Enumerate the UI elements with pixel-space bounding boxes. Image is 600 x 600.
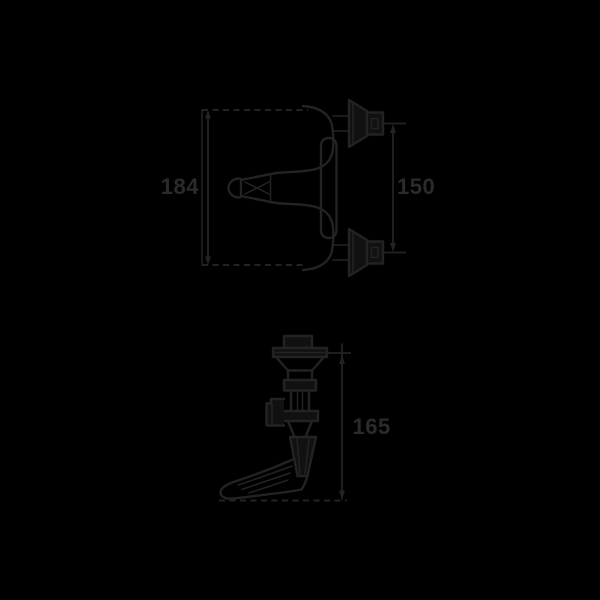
dimension-165: 165 bbox=[327, 344, 391, 500]
lower-cone bbox=[290, 437, 316, 476]
dimension-184-label: 184 bbox=[161, 174, 199, 199]
drawing-canvas: 184 bbox=[0, 0, 600, 600]
dimension-150: 150 bbox=[383, 124, 435, 253]
arrow-up-icon bbox=[390, 125, 396, 134]
body-band-lower bbox=[282, 411, 318, 421]
arrow-up-icon bbox=[339, 356, 345, 365]
body-cylinder bbox=[291, 391, 309, 412]
technical-drawing: 184 bbox=[0, 0, 600, 600]
handle-taper bbox=[276, 357, 324, 371]
bottom-union-body bbox=[367, 242, 383, 264]
arrow-down-icon bbox=[390, 243, 396, 252]
body-bridge bbox=[321, 138, 337, 238]
handle-cap bbox=[284, 336, 312, 348]
side-view: 165 bbox=[219, 336, 391, 501]
body-outline-bottom bbox=[241, 196, 333, 270]
bottom-flange-cone bbox=[349, 229, 367, 276]
spout-aerator-ring bbox=[229, 179, 239, 198]
body-band-upper bbox=[284, 380, 316, 391]
lower-taper bbox=[288, 421, 312, 437]
dimension-165-label: 165 bbox=[353, 414, 391, 439]
top-flange-cone bbox=[349, 100, 367, 147]
body-cylinder-lines bbox=[298, 391, 303, 412]
body-neck bbox=[288, 371, 312, 381]
dimension-150-label: 150 bbox=[397, 174, 435, 199]
dimension-184: 184 bbox=[161, 110, 211, 265]
arrow-down-icon bbox=[205, 257, 211, 266]
top-view: 184 bbox=[161, 100, 435, 276]
top-wall-union bbox=[349, 100, 383, 147]
bottom-wall-union bbox=[349, 229, 383, 276]
body-outline-top bbox=[241, 106, 333, 180]
arrow-down-icon bbox=[339, 491, 345, 500]
top-union-body bbox=[367, 113, 383, 135]
wall-bracket bbox=[267, 399, 285, 426]
arrow-up-icon bbox=[205, 110, 211, 119]
